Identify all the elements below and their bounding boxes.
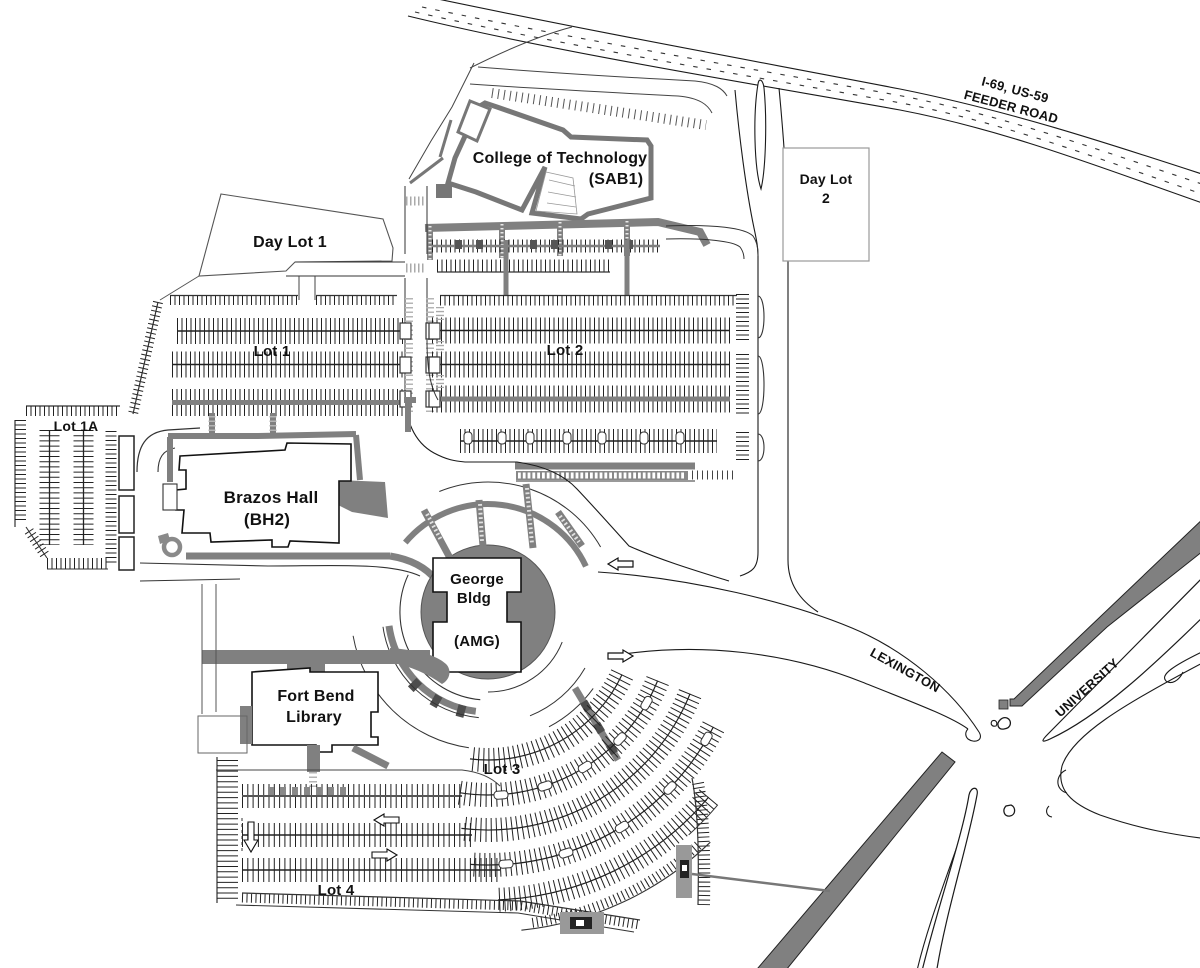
svg-text:Fort Bend: Fort Bend bbox=[277, 688, 354, 705]
svg-text:(BH2): (BH2) bbox=[244, 510, 290, 529]
svg-text:Lot 3: Lot 3 bbox=[484, 761, 521, 778]
svg-text:Bldg: Bldg bbox=[457, 590, 491, 607]
svg-text:2: 2 bbox=[822, 190, 830, 206]
svg-text:Lot 1A: Lot 1A bbox=[54, 418, 99, 434]
svg-text:(SAB1): (SAB1) bbox=[589, 171, 644, 188]
svg-text:Day Lot 1: Day Lot 1 bbox=[253, 234, 327, 251]
svg-text:Lot 4: Lot 4 bbox=[318, 882, 355, 899]
svg-text:Lot 2: Lot 2 bbox=[547, 342, 584, 359]
svg-text:(AMG): (AMG) bbox=[454, 633, 500, 650]
svg-text:College of Technology: College of Technology bbox=[473, 150, 648, 167]
svg-text:Lot 1: Lot 1 bbox=[254, 343, 291, 360]
svg-text:Brazos Hall: Brazos Hall bbox=[224, 488, 319, 507]
svg-text:Day Lot: Day Lot bbox=[800, 171, 853, 187]
svg-text:Library: Library bbox=[286, 709, 342, 726]
svg-text:George: George bbox=[450, 571, 504, 588]
